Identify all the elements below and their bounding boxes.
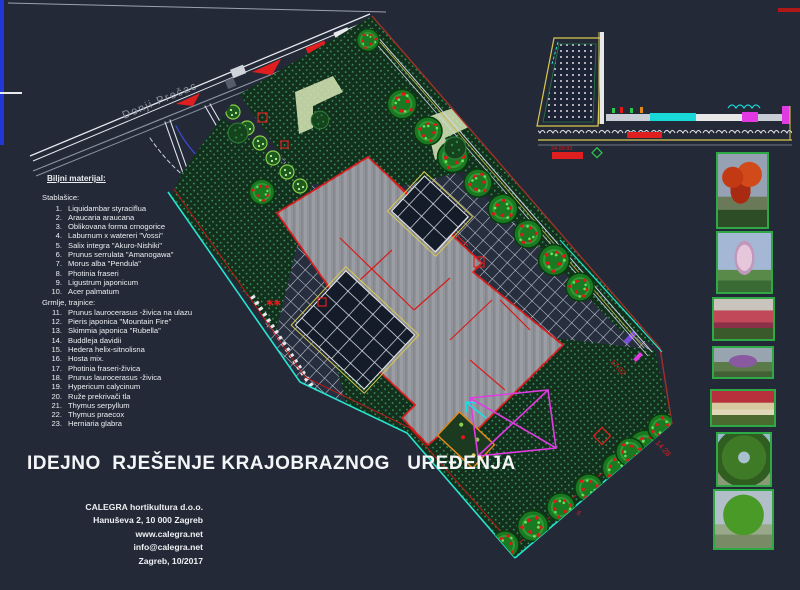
drawing-title: IDEJNO RJEŠENJE KRAJOBRAZNOG UREĐENJA — [27, 453, 516, 475]
cad-drawing-canvas: Donji Prečac — [0, 0, 800, 590]
company-name: CALEGRA hortikultura d.o.o. — [55, 501, 203, 514]
company-email: info@calegra.net — [55, 541, 203, 554]
shrubs-subheader: Grmlje, trajnice: — [42, 298, 267, 307]
dim-lot: 6. — [575, 510, 584, 519]
plant-material-list: Biljni materijal: Stablašice: 1.Liquidam… — [42, 174, 267, 429]
plant-list-item: 5.Salix integra "Akuro-Nishiki" — [42, 241, 267, 250]
plant-photo-purple-shrub — [712, 346, 774, 379]
road-label-box — [225, 77, 237, 89]
plant-list-item: 16.Hosta mix. — [42, 354, 267, 363]
plant-list-item: 6.Prunus serrulata "Amanogawa" — [42, 250, 267, 259]
plant-list-item: 1.Liquidambar styraciflua — [42, 204, 267, 213]
plant-photo-rose-bed — [710, 389, 776, 427]
section-scale-bar — [627, 132, 662, 138]
plant-list-item: 9.Ligustrum japonicum — [42, 278, 267, 287]
plant-list-item: 18.Prunus laurocerasus -živica — [42, 373, 267, 382]
plant-list-item: 7.Morus alba "Pendula" — [42, 259, 267, 268]
plant-list-item: 14.Buddleja davidii — [42, 336, 267, 345]
plant-list-item: 11.Prunus laurocerasus -živica na ulazu — [42, 308, 267, 317]
plant-list-item: 22.Thymus praecox — [42, 410, 267, 419]
section-wall — [600, 32, 604, 124]
plant-photo-weeping-tree — [713, 489, 774, 550]
plant-list-item: 17.Photinia fraseri-živica — [42, 364, 267, 373]
plant-list-item: 23.Herniaria glabra — [42, 419, 267, 428]
trees-subheader: Stablašice: — [42, 193, 267, 202]
section-detail: 24.99.93 — [537, 32, 792, 159]
section-marker — [592, 148, 602, 158]
frame-top-line — [8, 3, 386, 12]
left-blue-frame-strip — [0, 0, 4, 145]
plant-list-item: 13.Skimmia japonica "Rubella" — [42, 326, 267, 335]
plant-list-item: 4.Laburnum x watereri "Vossi" — [42, 231, 267, 240]
plant-list-item: 10.Acer palmatum — [42, 287, 267, 296]
section-scale-text: 24.99.93 — [551, 146, 572, 152]
plant-list-item: 19.Hypericum calycinum — [42, 382, 267, 391]
plant-list-item: 3.Oblikovana forma crnogorice — [42, 222, 267, 231]
plant-photo-red-hedge — [712, 297, 775, 341]
dim-14-28: 14.28 — [654, 438, 673, 458]
hedge-mark: ✱✱ — [266, 298, 281, 308]
section-layer-bar — [606, 105, 790, 124]
corner-red-mark — [778, 8, 800, 12]
company-place-date: Zagreb, 10/2017 — [55, 555, 203, 568]
plant-list-item: 20.Ruže prekrivači tla — [42, 392, 267, 401]
plant-list-item: 15.Hedera helix-sitnolisna — [42, 345, 267, 354]
plant-photo-green-arch — [716, 432, 772, 487]
section-scale-bar — [552, 152, 583, 159]
plant-photo-pink-blossom-tree — [716, 231, 773, 294]
company-address: Hanuševa 2, 10 000 Zagreb — [55, 514, 203, 527]
plant-list-item: 2.Araucaria araucana — [42, 213, 267, 222]
section-ground-hatch — [538, 126, 792, 137]
plant-list-item: 12.Pieris japonica "Mountain Fire" — [42, 317, 267, 326]
company-block: CALEGRA hortikultura d.o.o. Hanuševa 2, … — [55, 501, 203, 568]
plant-list-item: 8.Photinia fraseri — [42, 269, 267, 278]
plant-list-header: Biljni materijal: — [47, 174, 267, 183]
company-website: www.calegra.net — [55, 528, 203, 541]
plant-photo-red-autumn-tree — [716, 152, 769, 229]
plant-list-item: 21.Thymus serpyllum — [42, 401, 267, 410]
